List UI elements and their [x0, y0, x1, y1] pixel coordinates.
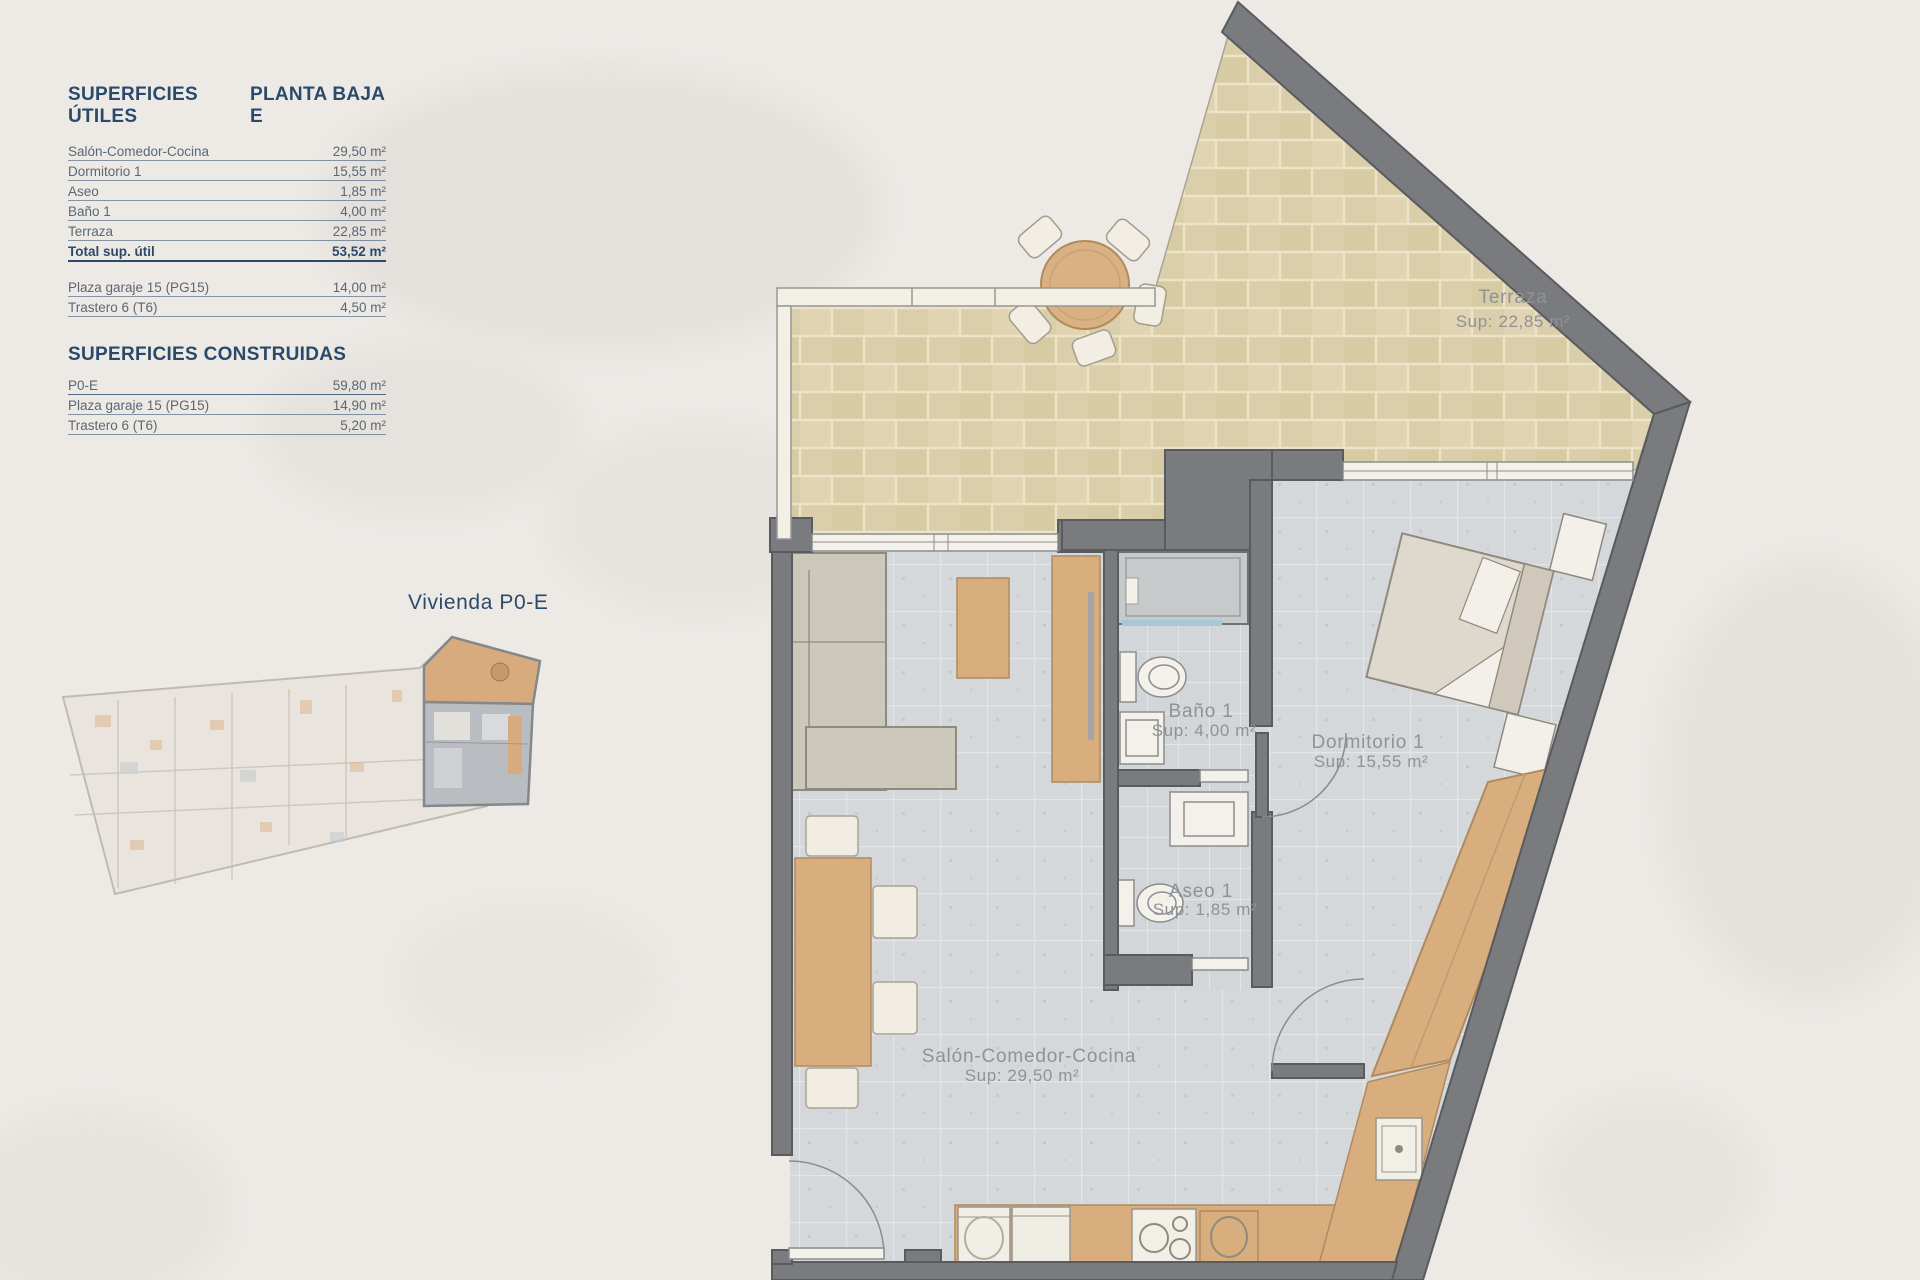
built-row-trastero: Trastero 6 (T6) 5,20 m² [68, 415, 386, 435]
room-label-terraza: Terraza [1479, 287, 1548, 308]
surface-row-aseo: Aseo 1,85 m² [68, 181, 386, 201]
row-label: Dormitorio 1 [68, 164, 142, 179]
kitchen-sink-icon [1376, 1118, 1422, 1180]
surfaces-title-row: SUPERFICIES ÚTILES PLANTA BAJA E [68, 84, 386, 128]
surface-row-bano: Baño 1 4,00 m² [68, 201, 386, 221]
surfaces-construidas-title: SUPERFICIES CONSTRUIDAS [68, 344, 386, 366]
row-value: 1,85 m² [340, 184, 386, 199]
row-value: 22,85 m² [333, 224, 386, 239]
tv-cabinet-icon [1052, 556, 1100, 782]
mini-plan-label: Vivienda P0-E [408, 591, 549, 614]
shower-icon [1118, 552, 1248, 626]
row-label: Total sup. útil [68, 244, 155, 259]
row-value: 14,00 m² [333, 280, 386, 295]
room-area-bano: Sup: 4,00 m² [1152, 721, 1257, 740]
living-room-window [812, 534, 1058, 551]
surface-row-trastero: Trastero 6 (T6) 4,50 m² [68, 297, 386, 317]
surfaces-panel: SUPERFICIES ÚTILES PLANTA BAJA E Salón-C… [68, 84, 386, 435]
built-row-garaje: Plaza garaje 15 (PG15) 14,90 m² [68, 395, 386, 415]
row-label: Baño 1 [68, 204, 111, 219]
room-label-bano: Baño 1 [1168, 701, 1233, 722]
row-value: 15,55 m² [333, 164, 386, 179]
row-value: 5,20 m² [340, 418, 386, 433]
coffee-table-icon [957, 578, 1009, 678]
built-row-p0e: P0-E 59,80 m² [68, 375, 386, 395]
room-area-terraza: Sup: 22,85 m² [1456, 312, 1571, 331]
row-label: Trastero 6 (T6) [68, 418, 158, 433]
surface-row-dormitorio: Dormitorio 1 15,55 m² [68, 161, 386, 181]
row-value: 53,52 m² [332, 244, 386, 259]
row-value: 14,90 m² [333, 398, 386, 413]
bedroom-window [1343, 462, 1633, 480]
surfaces-utiles-title: SUPERFICIES ÚTILES [68, 84, 250, 128]
row-value: 4,00 m² [340, 204, 386, 219]
surface-row-salon: Salón-Comedor-Cocina 29,50 m² [68, 141, 386, 161]
mini-key-plan: Vivienda P0-E [63, 591, 549, 894]
plan-sheet: Terraza Sup: 22,85 m² Baño 1 Sup: 4,00 m… [0, 0, 1920, 1280]
bath-door-leaf [1200, 770, 1248, 782]
room-label-salon: Salón-Comedor-Cocina [922, 1046, 1137, 1067]
mini-highlighted-unit [424, 637, 540, 806]
aseo-door-leaf [1192, 958, 1248, 970]
surface-row-terraza: Terraza 22,85 m² [68, 221, 386, 241]
row-value: 59,80 m² [333, 378, 386, 393]
row-label: Plaza garaje 15 (PG15) [68, 398, 209, 413]
surface-row-garaje: Plaza garaje 15 (PG15) 14,00 m² [68, 277, 386, 297]
row-label: Terraza [68, 224, 113, 239]
main-floor-plan: Terraza Sup: 22,85 m² Baño 1 Sup: 4,00 m… [770, 2, 1690, 1280]
row-label: P0-E [68, 378, 98, 393]
room-label-aseo: Aseo 1 [1169, 881, 1233, 902]
plan-name: PLANTA BAJA E [250, 84, 386, 128]
surface-row-total: Total sup. útil 53,52 m² [68, 241, 386, 262]
row-label: Salón-Comedor-Cocina [68, 144, 209, 159]
room-label-dormitorio: Dormitorio 1 [1311, 732, 1424, 753]
room-area-dormitorio: Sup: 15,55 m² [1314, 752, 1429, 771]
row-value: 4,50 m² [340, 300, 386, 315]
room-area-salon: Sup: 29,50 m² [965, 1066, 1080, 1085]
room-area-aseo: Sup: 1,85 m² [1153, 900, 1258, 919]
aseo-sink-icon [1170, 792, 1248, 846]
row-label: Plaza garaje 15 (PG15) [68, 280, 209, 295]
row-label: Aseo [68, 184, 99, 199]
row-label: Trastero 6 (T6) [68, 300, 158, 315]
row-value: 29,50 m² [333, 144, 386, 159]
